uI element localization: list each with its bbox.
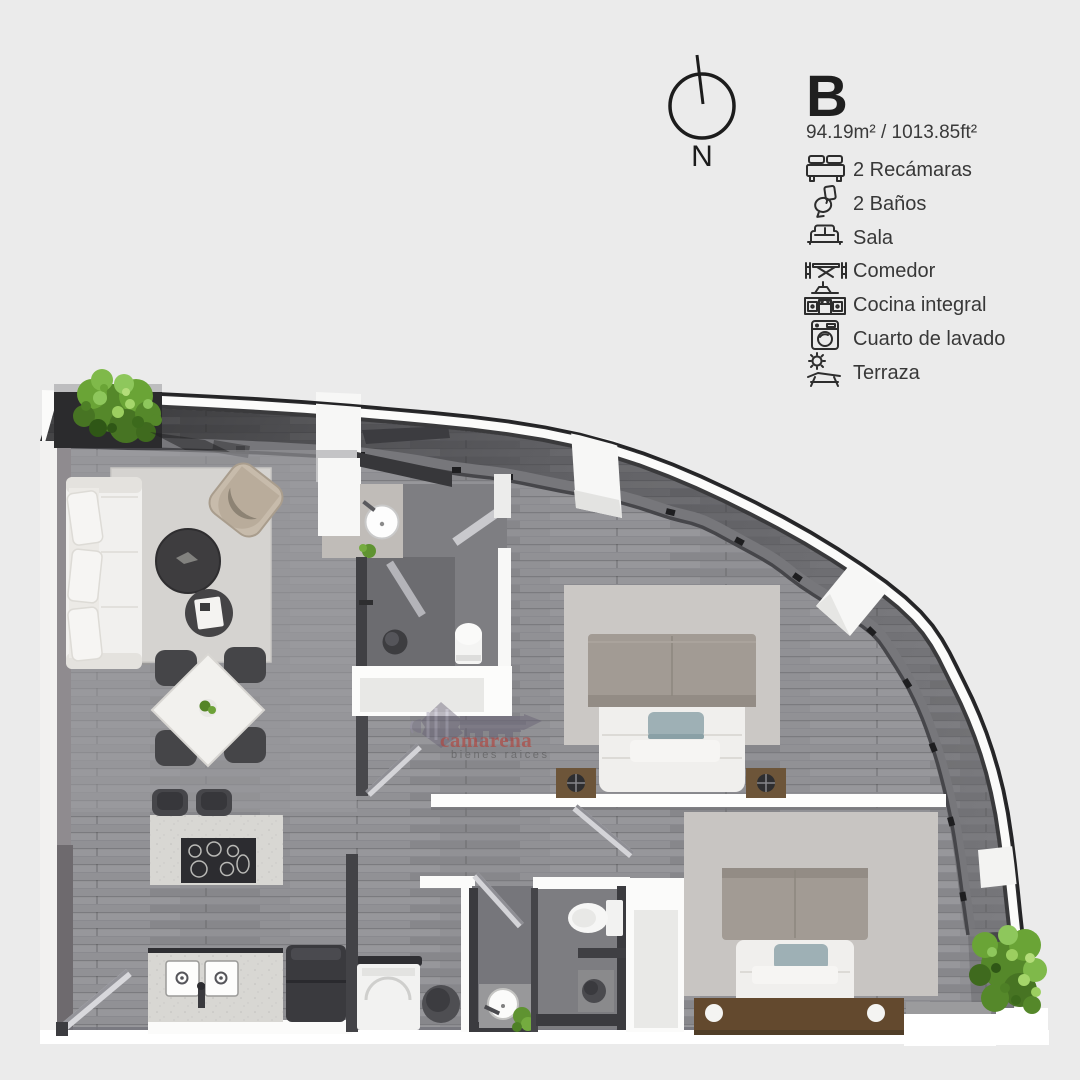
svg-text:B: B	[806, 64, 848, 129]
svg-text:94.19m² / 1013.85ft²: 94.19m² / 1013.85ft²	[806, 122, 977, 143]
svg-text:Cocina integral: Cocina integral	[853, 294, 986, 316]
svg-text:Sala: Sala	[853, 227, 894, 249]
svg-text:N: N	[691, 140, 713, 173]
svg-text:Cuarto de lavado: Cuarto de lavado	[853, 328, 1005, 350]
svg-text:Comedor: Comedor	[853, 260, 936, 282]
svg-text:2 Recámaras: 2 Recámaras	[853, 159, 972, 181]
svg-text:2 Baños: 2 Baños	[853, 193, 926, 215]
svg-text:Terraza: Terraza	[853, 362, 921, 384]
svg-text:bienes raices: bienes raices	[451, 749, 550, 761]
